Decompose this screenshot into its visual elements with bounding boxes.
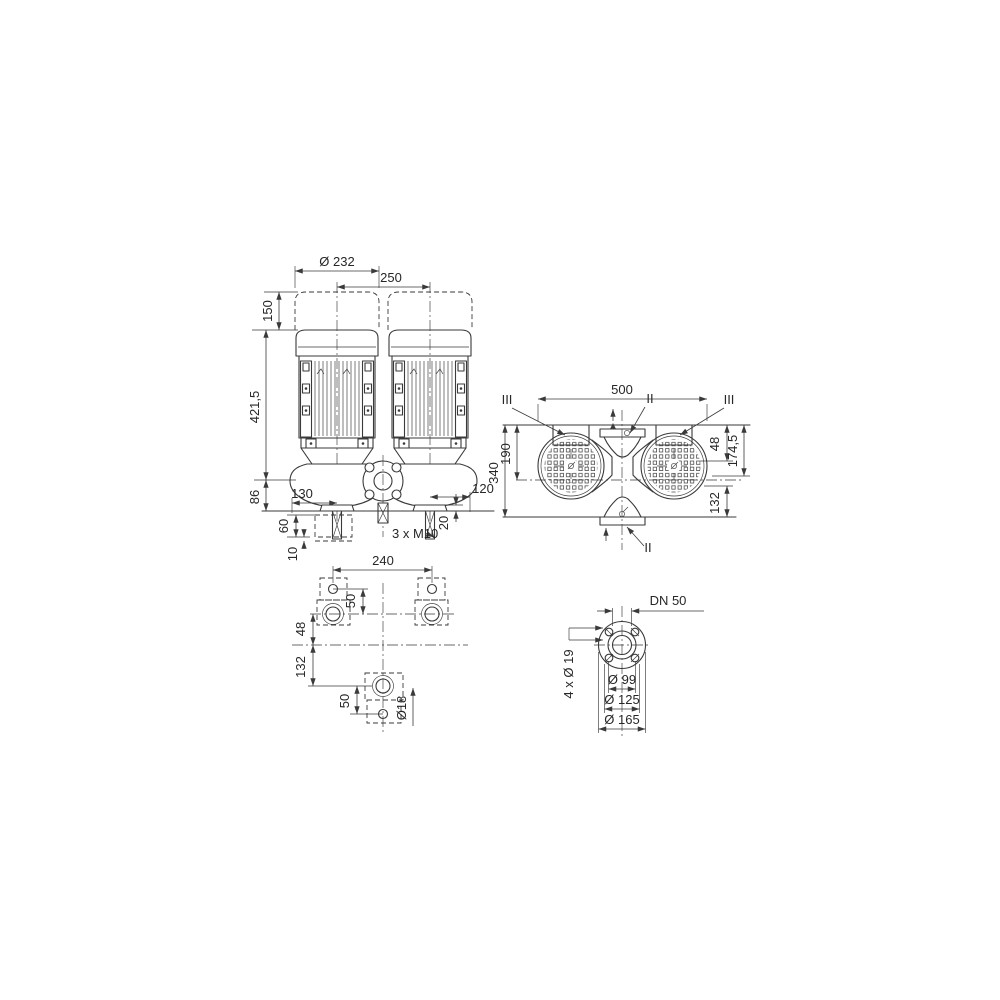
dim-overall-width: 500 [611, 382, 633, 397]
discharge-flange-bottom [600, 497, 645, 541]
fan-cover-right [641, 433, 707, 499]
front-view: Ø 232 250 150 421,5 86 130 120 20 3 x M1… [247, 254, 494, 561]
top-view-dimensions: 500 190 340 48 174,5 132 III II III II [486, 382, 750, 555]
dim-front-hole-offset: 50 [343, 594, 358, 608]
foot-plan-view: 240 50 48 132 50 Ø18 [292, 553, 468, 733]
tie-rod-left [301, 361, 312, 437]
top-view: 500 190 340 48 174,5 132 III II III II [486, 382, 750, 555]
tie-rod-right [363, 361, 374, 437]
fin-break-marks [317, 369, 350, 374]
dim-edge-to-center: 174,5 [725, 435, 740, 468]
dim-edge-to-motor-axis: 190 [498, 443, 513, 465]
dim-motor-spacing: 250 [380, 270, 402, 285]
dim-outer-diameter: Ø 165 [604, 712, 639, 727]
section-marker-iii-left: III [502, 392, 513, 407]
fan-cover-left [538, 433, 604, 499]
dim-pad-shim: 10 [285, 547, 300, 561]
section-marker-ii-bottom: II [644, 540, 651, 555]
dim-motor-axis-offset: 48 [707, 437, 722, 451]
dim-height-axis-to-top: 421,5 [247, 391, 262, 424]
pump-foot [320, 505, 354, 511]
dim-axis-to-left: 130 [291, 486, 313, 501]
dim-pad-height: 60 [276, 519, 291, 533]
section-marker-iii-right: III [724, 392, 735, 407]
pump-motor-unit-2 [383, 282, 477, 539]
dim-overall-depth: 340 [486, 462, 501, 484]
dim-bolt-holes: 4 x Ø 19 [561, 649, 576, 698]
dim-rear-hole-offset: 50 [337, 694, 352, 708]
dim-center-to-rear: 132 [707, 492, 722, 514]
front-foot-right [415, 578, 448, 625]
dim-bolt-circle: Ø 125 [604, 692, 639, 707]
dim-motor-diameter: Ø 232 [319, 254, 354, 269]
label-stud-spec: 3 x M10 [392, 526, 438, 541]
dim-raised-face: Ø 99 [608, 672, 636, 687]
dim-bolt-spacing: 240 [372, 553, 394, 568]
dim-center-to-rear-foot: 132 [293, 656, 308, 678]
section-marker-ii-top: II [646, 391, 653, 406]
flange-dimensions: DN 50 4 x Ø 19 Ø 99 Ø 125 Ø 165 [561, 593, 704, 733]
flange-detail-view: DN 50 4 x Ø 19 Ø 99 Ø 125 Ø 165 [561, 593, 704, 739]
dim-base-to-axis: 86 [247, 490, 262, 504]
dim-nominal-bore: DN 50 [650, 593, 687, 608]
suction-flange-top [600, 409, 645, 457]
dim-foot-thickness: 20 [436, 516, 451, 530]
dim-feet-axis-to-center: 48 [293, 622, 308, 636]
dim-bolt-hole-diameter: Ø18 [394, 696, 409, 721]
pump-technical-drawing: Ø 232 250 150 421,5 86 130 120 20 3 x M1… [0, 0, 1000, 1000]
drain-plug [378, 503, 388, 523]
center-port-flange [363, 455, 403, 537]
dim-clearance-height: 150 [260, 300, 275, 322]
foundation-pad-dashed [315, 515, 352, 541]
foot-plan-dimensions: 240 50 48 132 50 Ø18 [293, 553, 432, 726]
drawing-canvas: Ø 232 250 150 421,5 86 130 120 20 3 x M1… [0, 0, 1000, 1000]
